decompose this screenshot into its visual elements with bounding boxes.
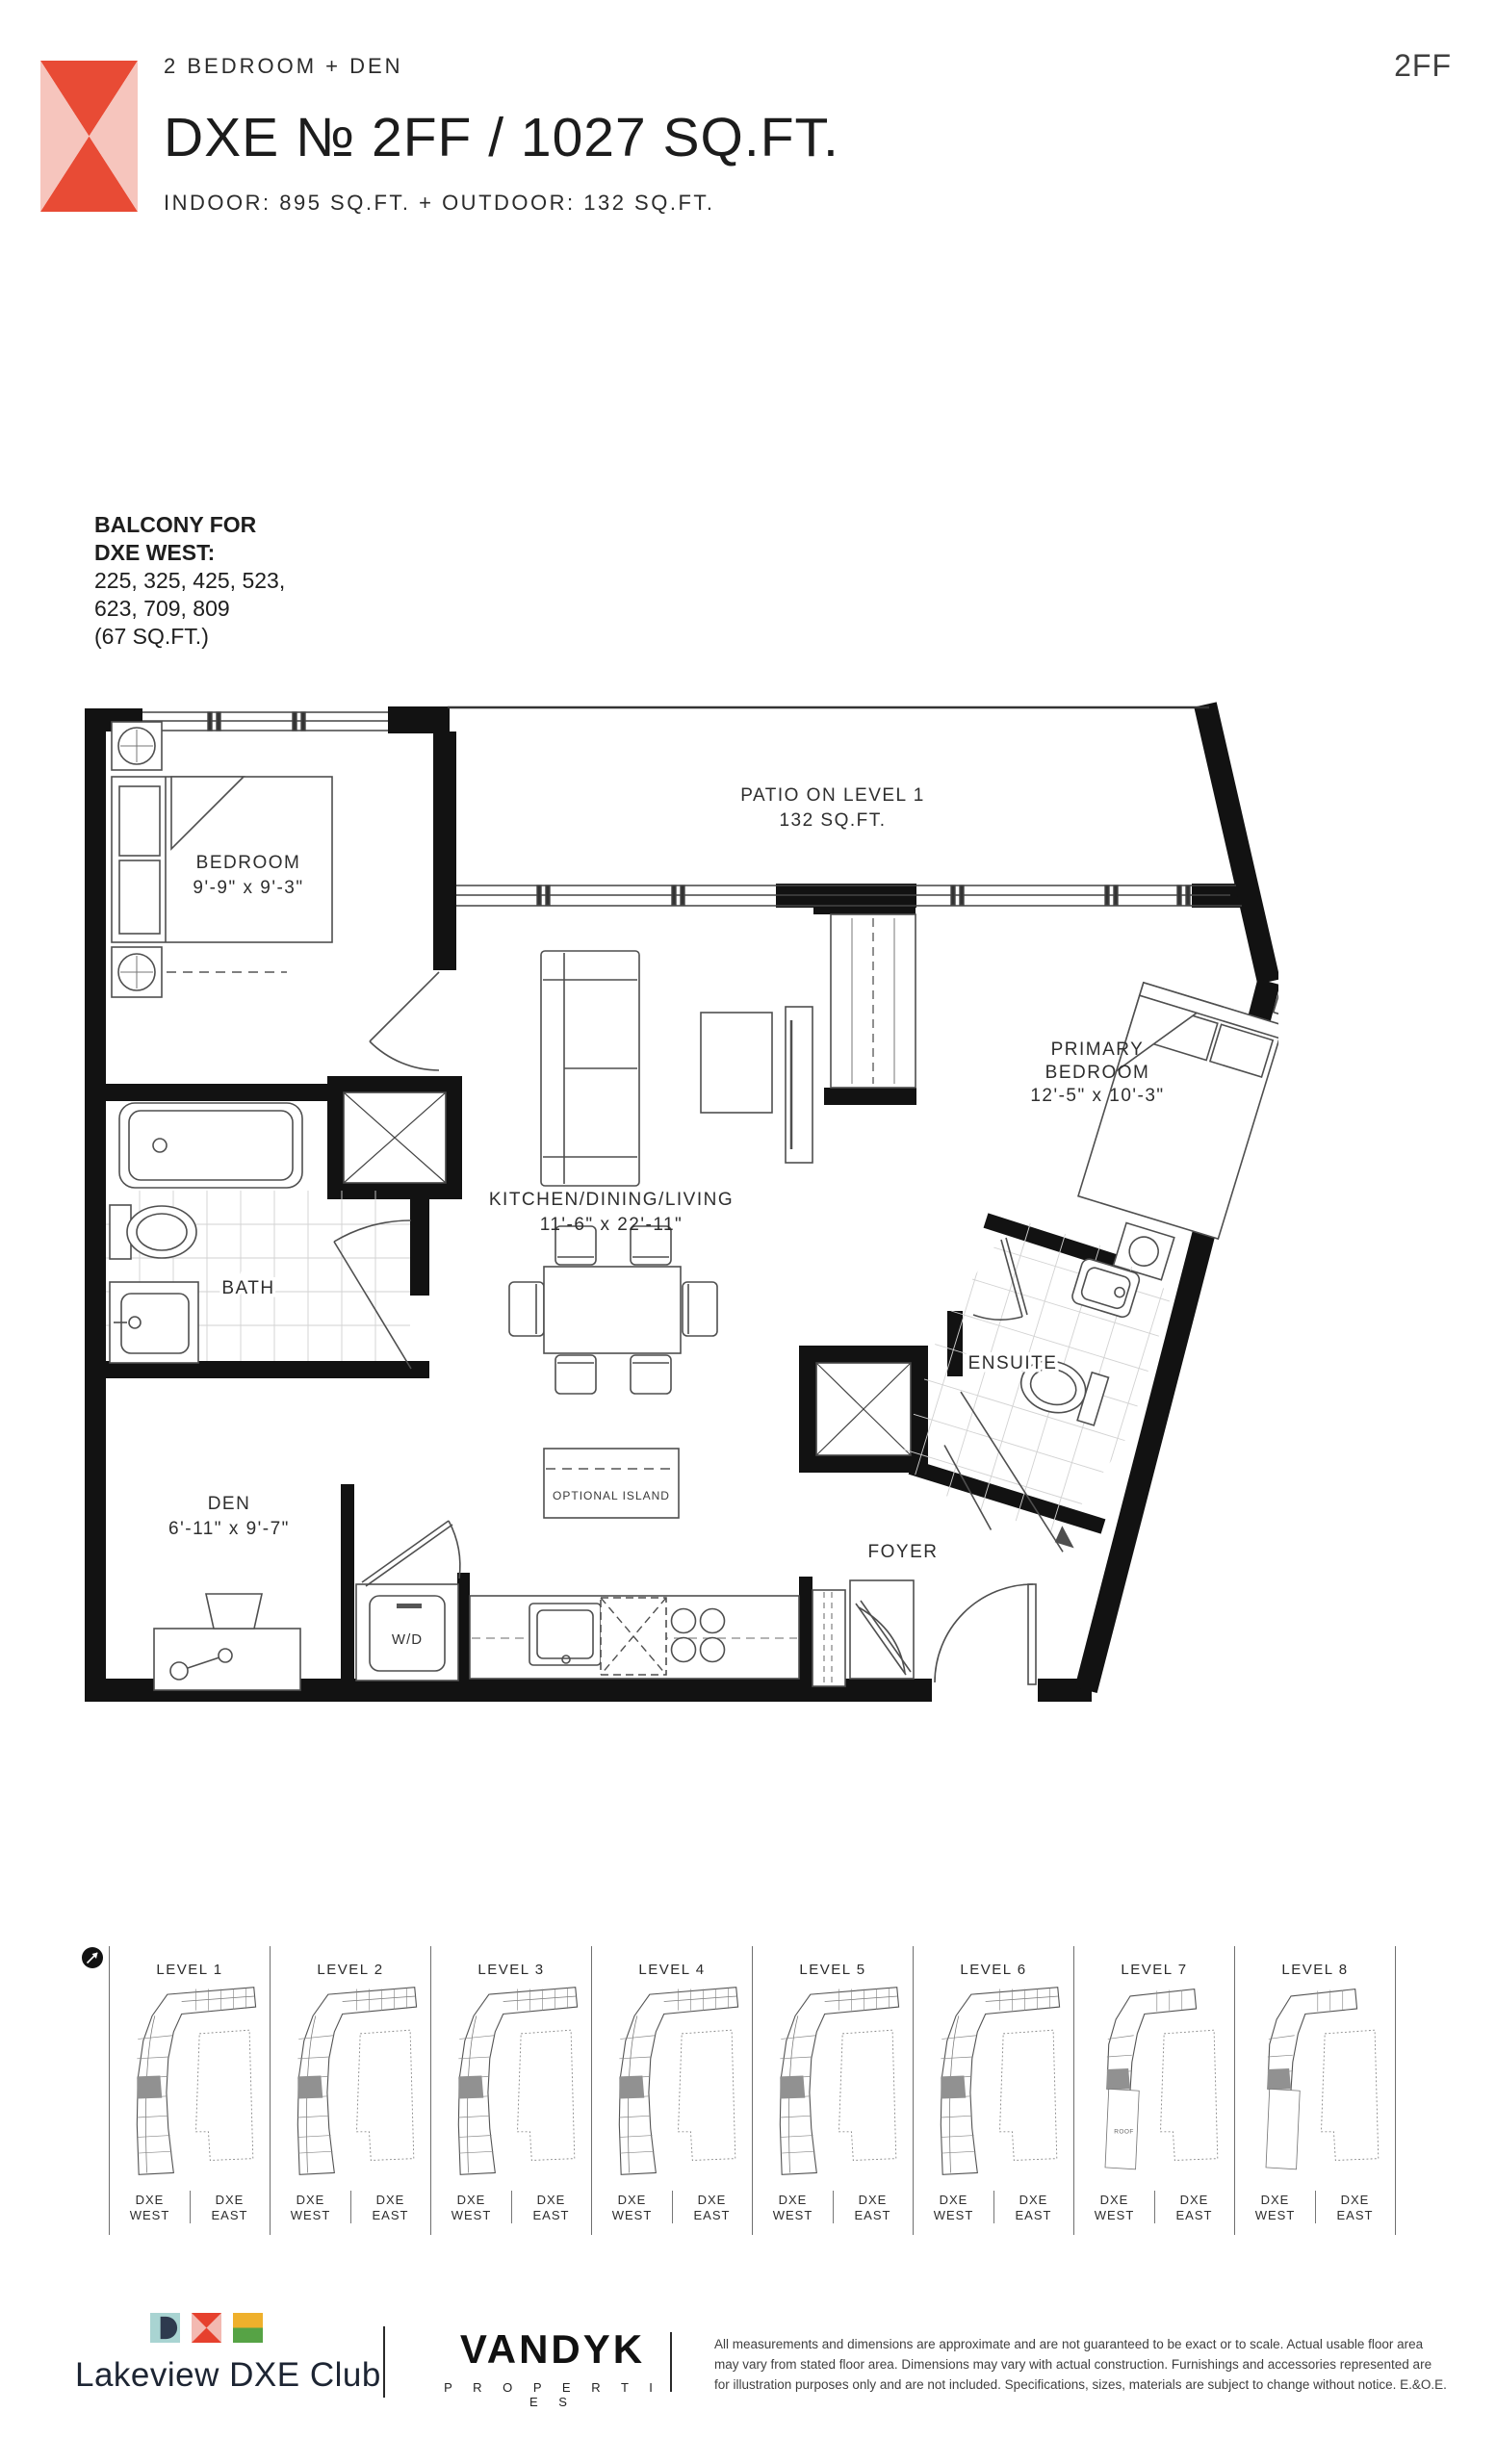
key-plan-map bbox=[761, 1984, 905, 2191]
key-plan-map bbox=[1243, 1984, 1387, 2191]
page-title: DXE № 2FF / 1027 SQ.FT. bbox=[164, 106, 839, 169]
balcony-heading-line1: BALCONY FOR bbox=[94, 511, 285, 539]
key-plan-level-7: LEVEL 7 ROOF DXEWEST DXEEAST bbox=[1073, 1946, 1234, 2235]
dxe-east-label: DXEEAST bbox=[993, 2193, 1073, 2223]
wd-label: W/D bbox=[392, 1631, 423, 1648]
dxe-west-label: DXEWEST bbox=[592, 2193, 672, 2223]
unit-code: 2FF bbox=[1394, 48, 1452, 84]
ensuite-label: ENSUITE bbox=[968, 1353, 1058, 1373]
dxe-west-label: DXEWEST bbox=[1235, 2193, 1315, 2223]
kitchen-dims: 11'-6" x 22'-11" bbox=[540, 1215, 684, 1235]
level-title: LEVEL 6 bbox=[960, 1962, 1026, 1978]
key-plan-level-6: LEVEL 6 DXEWEST DXEEAST bbox=[913, 1946, 1073, 2235]
key-plan-level-4: LEVEL 4 DXEWEST DXEEAST bbox=[591, 1946, 752, 2235]
footer-divider-2 bbox=[670, 2332, 672, 2392]
header-titles: 2 BEDROOM + DEN DXE № 2FF / 1027 SQ.FT. … bbox=[164, 54, 839, 216]
dxe-east-label: DXEEAST bbox=[190, 2193, 270, 2223]
bath-label: BATH bbox=[221, 1278, 274, 1298]
key-plan-map bbox=[600, 1984, 744, 2191]
vandyk-logo: VANDYK P R O P E R T I E S bbox=[435, 2326, 670, 2409]
level-title: LEVEL 7 bbox=[1121, 1962, 1187, 1978]
dining-set bbox=[509, 1226, 717, 1394]
bedroom-window bbox=[142, 712, 388, 731]
balcony-area-line: (67 SQ.FT.) bbox=[94, 623, 285, 651]
dxe-east-label: DXEEAST bbox=[1154, 2193, 1234, 2223]
key-plan-map bbox=[439, 1984, 583, 2191]
island-label: OPTIONAL ISLAND bbox=[553, 1489, 670, 1502]
dxe-letter-tiles-icon bbox=[75, 2313, 337, 2343]
key-plan-level-1: LEVEL 1 DXEWEST DXEEAST bbox=[109, 1946, 270, 2235]
balcony-units-line1: 225, 325, 425, 523, bbox=[94, 567, 285, 595]
foyer-entry bbox=[850, 1580, 1036, 1684]
dxe-west-label: DXEWEST bbox=[271, 2193, 350, 2223]
kitchen-label: KITCHEN/DINING/LIVING bbox=[489, 1190, 734, 1210]
floorplan-page: 2 BEDROOM + DEN DXE № 2FF / 1027 SQ.FT. … bbox=[0, 0, 1496, 2464]
dxe-east-label: DXEEAST bbox=[511, 2193, 591, 2223]
footer: Lakeview DXE Club VANDYK P R O P E R T I… bbox=[0, 2305, 1496, 2440]
dxe-east-label: DXEEAST bbox=[672, 2193, 752, 2223]
foyer-label: FOYER bbox=[868, 1542, 939, 1562]
den-label: DEN bbox=[208, 1494, 251, 1514]
north-arrow-icon bbox=[81, 1946, 104, 1969]
living-furniture bbox=[541, 951, 812, 1186]
vandyk-wordmark: VANDYK bbox=[435, 2326, 670, 2373]
area-subtitle: INDOOR: 895 SQ.FT. + OUTDOOR: 132 SQ.FT. bbox=[164, 191, 839, 216]
den-furniture bbox=[154, 1594, 300, 1690]
roof-label: ROOF bbox=[1114, 2129, 1134, 2136]
dxe-east-label: DXEEAST bbox=[1315, 2193, 1395, 2223]
level-title: LEVEL 2 bbox=[317, 1962, 383, 1978]
primary-closet bbox=[831, 914, 916, 1088]
dxe-west-label: DXEWEST bbox=[1074, 2193, 1154, 2223]
level-title: LEVEL 8 bbox=[1281, 1962, 1348, 1978]
primary-bed bbox=[1062, 931, 1278, 1301]
lakeview-dxe-club-logo: Lakeview DXE Club bbox=[75, 2313, 337, 2395]
footer-divider-1 bbox=[383, 2326, 385, 2398]
key-plan-level-5: LEVEL 5 DXEWEST DXEEAST bbox=[752, 1946, 913, 2235]
bedroom-label: BEDROOM bbox=[196, 853, 301, 873]
dxe-west-label: DXEWEST bbox=[914, 2193, 993, 2223]
lakeview-wordmark: Lakeview DXE Club bbox=[75, 2356, 337, 2395]
dxe-east-label: DXEEAST bbox=[833, 2193, 913, 2223]
key-plan-map bbox=[278, 1984, 423, 2191]
patio-dims: 132 SQ.FT. bbox=[779, 810, 886, 831]
key-plan-level-3: LEVEL 3 DXEWEST DXEEAST bbox=[430, 1946, 591, 2235]
key-plan-map bbox=[921, 1984, 1066, 2191]
kitchen-counter bbox=[470, 1590, 845, 1686]
key-plan-map bbox=[117, 1984, 262, 2191]
primary-dims: 12'-5" x 10'-3" bbox=[1030, 1086, 1164, 1106]
key-plan-level-2: LEVEL 2 DXEWEST DXEEAST bbox=[270, 1946, 430, 2235]
key-plan-level-8: LEVEL 8 DXEWEST DXEEAST bbox=[1234, 1946, 1395, 2235]
balcony-heading-line2: DXE WEST: bbox=[94, 539, 285, 567]
level-title: LEVEL 3 bbox=[477, 1962, 544, 1978]
balcony-note: BALCONY FOR DXE WEST: 225, 325, 425, 523… bbox=[94, 511, 285, 651]
den-dims: 6'-11" x 9'-7" bbox=[168, 1519, 290, 1539]
level-title: LEVEL 4 bbox=[638, 1962, 705, 1978]
optional-island bbox=[544, 1449, 679, 1518]
patio-label: PATIO ON LEVEL 1 bbox=[740, 785, 925, 806]
unit-type-eyebrow: 2 BEDROOM + DEN bbox=[164, 54, 839, 79]
primary-label-2: BEDROOM bbox=[1045, 1063, 1150, 1083]
dxe-west-label: DXEWEST bbox=[431, 2193, 511, 2223]
vandyk-properties-label: P R O P E R T I E S bbox=[435, 2380, 670, 2409]
dxe-x-mark-icon bbox=[40, 61, 138, 212]
dxe-west-label: DXEWEST bbox=[110, 2193, 190, 2223]
dxe-east-label: DXEEAST bbox=[350, 2193, 430, 2223]
primary-label-1: PRIMARY bbox=[1051, 1039, 1145, 1060]
washer-dryer bbox=[356, 1521, 460, 1681]
legal-disclaimer: All measurements and dimensions are appr… bbox=[714, 2334, 1448, 2395]
dxe-west-label: DXEWEST bbox=[753, 2193, 833, 2223]
level-title: LEVEL 5 bbox=[799, 1962, 865, 1978]
balcony-units-line2: 623, 709, 809 bbox=[94, 595, 285, 623]
key-plan-map: ROOF bbox=[1082, 1984, 1226, 2191]
level-title: LEVEL 1 bbox=[156, 1962, 222, 1978]
key-plan-strip: LEVEL 1 DXEWEST DXEEAST LEVEL 2 DXEWEST … bbox=[109, 1946, 1396, 2235]
bedroom-dims: 9'-9" x 9'-3" bbox=[193, 878, 303, 898]
floor-plan: BEDROOM 9'-9" x 9'-3" PATIO ON LEVEL 1 1… bbox=[85, 695, 1278, 1734]
